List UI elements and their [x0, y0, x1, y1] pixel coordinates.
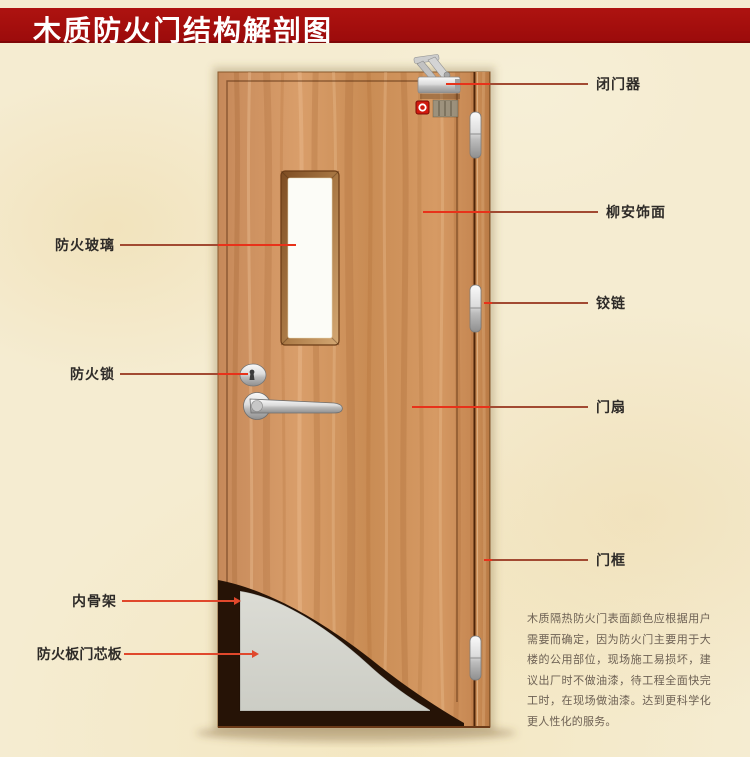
fire-rating-badge — [416, 101, 429, 114]
hinge-middle — [470, 285, 481, 332]
leader-line-door-frame-bg — [492, 559, 588, 561]
label-door-closer: 闭门器 — [596, 76, 641, 92]
label-fire-glass: 防火玻璃 — [25, 237, 115, 253]
leader-arrow-inner-skeleton — [234, 597, 241, 605]
leader-arrow-fire-board-core — [252, 650, 259, 658]
label-door-leaf: 门扇 — [596, 399, 626, 415]
description-text: 木质隔热防火门表面颜色应根据用户需要而确定，因为防火门主要用于大楼的公用部位，现… — [527, 609, 711, 732]
fire-lock-escutcheon — [240, 364, 266, 386]
page-title: 木质防火门结构解剖图 — [33, 9, 333, 49]
leader-line-inner-skeleton — [122, 600, 234, 602]
label-hinge: 铰链 — [596, 295, 626, 311]
leader-line-fire-lock-bg — [120, 373, 218, 375]
hinge-top — [470, 112, 481, 158]
leader-line-door-leaf — [412, 406, 490, 408]
leader-line-fire-lock — [218, 373, 248, 375]
leader-line-hinge — [484, 302, 492, 304]
leader-line-fire-glass-bg — [120, 244, 218, 246]
leader-line-fire-glass — [218, 244, 296, 246]
label-fire-board-core: 防火板门芯板 — [28, 646, 122, 662]
label-fire-lock: 防火锁 — [40, 366, 115, 382]
label-inner-skeleton: 内骨架 — [42, 593, 117, 609]
leader-line-veneer — [423, 211, 490, 213]
leader-line-door-closer — [446, 83, 490, 85]
fire-glass-window — [281, 171, 339, 345]
door-closer-body — [418, 77, 460, 99]
leader-line-door-leaf-bg — [490, 406, 588, 408]
leader-line-veneer-bg — [490, 211, 598, 213]
glass-pane — [288, 178, 332, 338]
leader-line-hinge-bg — [492, 302, 588, 304]
label-lauan-veneer: 柳安饰面 — [606, 204, 666, 220]
hinge-bottom — [470, 636, 481, 680]
label-door-frame: 门框 — [596, 552, 626, 568]
infographic-page: 防火玻璃 防火锁 内骨架 防火板门芯板 闭门器 柳安饰面 铰链 门扇 门框 木质… — [0, 0, 750, 757]
leader-line-fire-board-core — [124, 653, 252, 655]
leader-line-door-frame — [484, 559, 492, 561]
vent-plate — [433, 100, 458, 117]
leader-line-door-closer-bg — [490, 83, 588, 85]
